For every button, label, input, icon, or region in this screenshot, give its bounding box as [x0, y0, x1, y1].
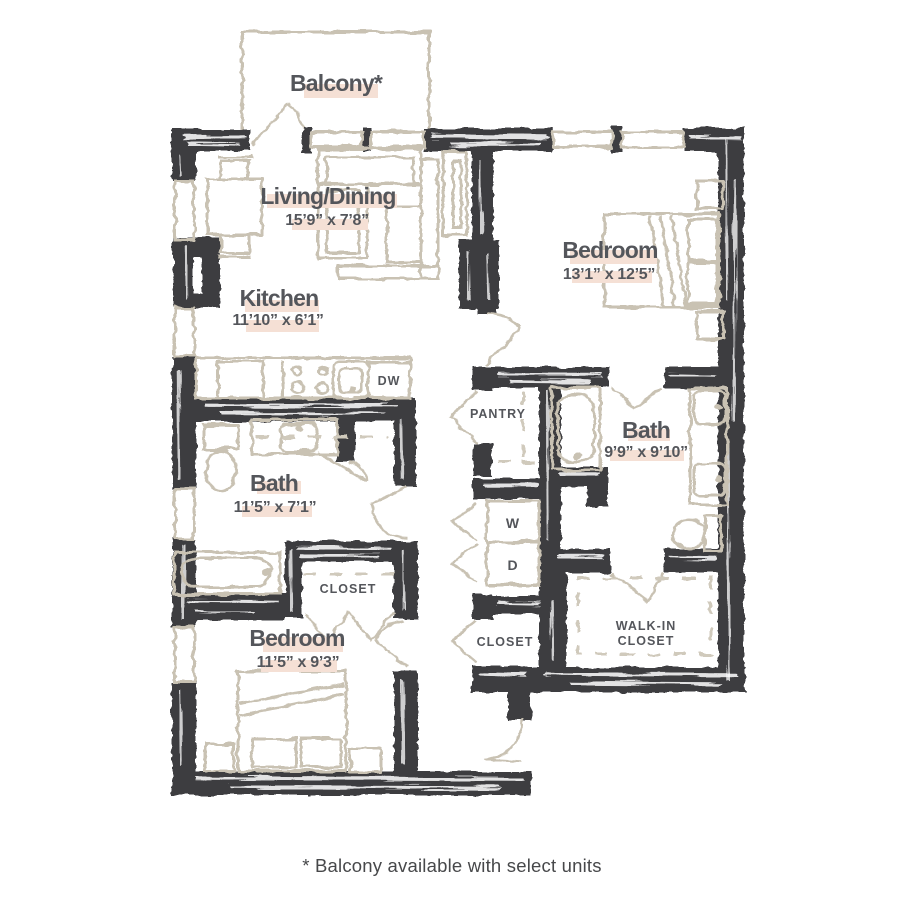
- svg-text:D: D: [507, 557, 518, 573]
- svg-text:W: W: [506, 515, 520, 531]
- svg-text:Bath: Bath: [250, 470, 298, 496]
- svg-text:Bedroom: Bedroom: [562, 237, 658, 263]
- svg-text:Bedroom: Bedroom: [249, 625, 345, 651]
- svg-text:Balcony*: Balcony*: [290, 70, 383, 96]
- svg-text:11’5” x 7’1”: 11’5” x 7’1”: [234, 499, 317, 516]
- svg-text:CLOSET: CLOSET: [618, 634, 675, 648]
- svg-text:CLOSET: CLOSET: [320, 582, 377, 596]
- svg-text:Kitchen: Kitchen: [240, 285, 319, 311]
- svg-text:13’1” x 12’5”: 13’1” x 12’5”: [563, 266, 655, 283]
- svg-text:* Balcony available with selec: * Balcony available with select units: [302, 855, 601, 876]
- svg-text:Bath: Bath: [622, 417, 670, 443]
- svg-text:11’10” x 6’1”: 11’10” x 6’1”: [232, 312, 323, 329]
- svg-text:9’9” x 9’10”: 9’9” x 9’10”: [604, 444, 688, 461]
- svg-text:11’5” x 9’3”: 11’5” x 9’3”: [257, 654, 340, 671]
- svg-text:Living/Dining: Living/Dining: [260, 183, 395, 209]
- svg-text:CLOSET: CLOSET: [477, 635, 534, 649]
- svg-text:WALK-IN: WALK-IN: [616, 619, 676, 633]
- svg-text:PANTRY: PANTRY: [470, 407, 526, 421]
- svg-text:15’9” x 7’8”: 15’9” x 7’8”: [285, 212, 369, 229]
- svg-text:DW: DW: [378, 374, 401, 388]
